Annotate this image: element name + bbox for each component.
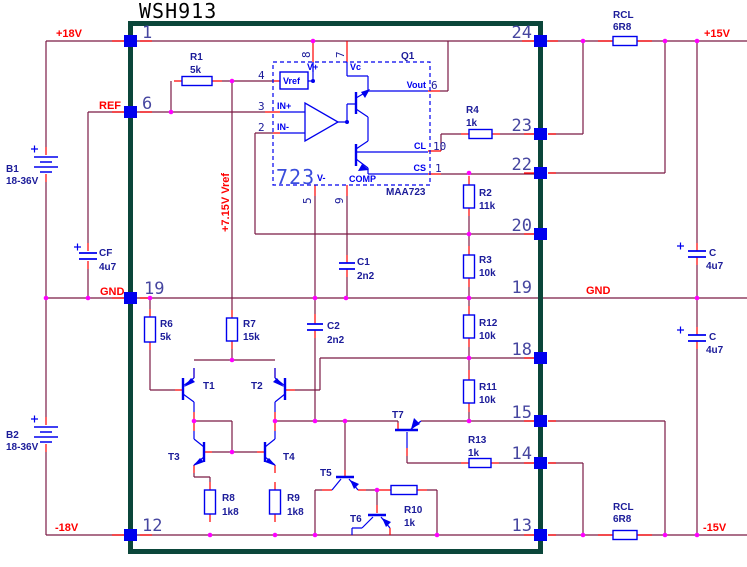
rcl-bottom-name: RCL <box>613 502 634 513</box>
r3-name: R3 <box>479 255 492 266</box>
ic-pin-3: 3 <box>258 100 265 113</box>
transistor-t1: T1 <box>183 368 215 412</box>
battery-b1: B1 18-36V <box>6 146 58 188</box>
c-bottom-value: 4u7 <box>706 345 724 356</box>
ic-pin-1: 1 <box>435 162 442 175</box>
resistor-rcl-bottom: RCL 6R8 <box>613 502 637 540</box>
t4-label: T4 <box>283 452 295 463</box>
t5-label: T5 <box>320 468 332 479</box>
ic-pin-10: 10 <box>433 140 446 153</box>
wire-minus15-links <box>548 421 747 535</box>
transistor-t7: T7 <box>392 410 421 448</box>
resistor-r3: R3 10k <box>464 255 497 279</box>
ic-vc: Vc <box>350 62 361 72</box>
pin-23: 23 <box>512 116 532 136</box>
ic-vminus: V- <box>317 173 326 183</box>
wire-cl-cs-sense-top <box>548 41 665 173</box>
transistor-t6: T6 <box>350 514 391 535</box>
module-title: WSH913 <box>139 0 217 23</box>
pin-19-left: 19 <box>144 279 164 299</box>
r6-value: 5k <box>160 332 172 343</box>
t1-label: T1 <box>203 381 215 392</box>
resistor-r2: R2 11k <box>464 185 496 212</box>
c1-value: 2n2 <box>357 271 375 282</box>
rcl-bottom-value: 6R8 <box>613 514 632 525</box>
b2-value: 18-36V <box>6 442 39 453</box>
r12-value: 10k <box>479 331 496 342</box>
label-plus18: +18V <box>56 28 83 40</box>
label-gnd-left: GND <box>100 286 125 298</box>
battery-b2: B2 18-36V <box>6 416 58 454</box>
capacitor-c1: C1 2n2 <box>339 257 375 282</box>
pin-18: 18 <box>512 340 532 360</box>
module-border <box>131 24 541 552</box>
rcl-top-name: RCL <box>613 10 634 21</box>
transistor-t5: T5 <box>320 468 359 490</box>
pin-22: 22 <box>512 155 532 175</box>
resistor-rcl-top: RCL 6R8 <box>613 10 637 46</box>
capacitor-c-top: C 4u7 <box>677 243 724 273</box>
label-plus15: +15V <box>704 28 731 40</box>
label-minus15: -15V <box>703 522 727 534</box>
pin-6: 6 <box>142 94 152 114</box>
r4-value: 1k <box>466 118 478 129</box>
r11-value: 10k <box>479 395 496 406</box>
b1-name: B1 <box>6 164 19 175</box>
t6-label: T6 <box>350 514 362 525</box>
resistor-r7: R7 15k <box>227 318 261 343</box>
c1-name: C1 <box>357 257 370 268</box>
r8-value: 1k8 <box>222 507 239 518</box>
ic-inminus: IN- <box>277 122 289 132</box>
c2-value: 2n2 <box>327 335 345 346</box>
t2-label: T2 <box>251 381 263 392</box>
capacitor-c-bottom: C 4u7 <box>677 327 724 357</box>
r11-name: R11 <box>479 382 497 393</box>
t3-label: T3 <box>168 452 180 463</box>
pin-19-right: 19 <box>512 278 532 298</box>
ic-pin-4: 4 <box>258 69 265 82</box>
ic-vref-text: Vref <box>283 76 301 86</box>
c2-name: C2 <box>327 321 340 332</box>
resistor-r11: R11 10k <box>464 380 498 406</box>
capacitor-cf: CF 4u7 <box>74 244 117 274</box>
r4-name: R4 <box>466 105 479 116</box>
r2-value: 11k <box>479 201 496 212</box>
ic-comp: COMP <box>349 174 376 184</box>
r13-name: R13 <box>468 435 487 446</box>
c-top-value: 4u7 <box>706 261 724 272</box>
wire-protection <box>315 421 437 535</box>
pin-1: 1 <box>142 23 152 43</box>
transistor-t3: T3 <box>168 431 210 482</box>
opamp-triangle <box>305 103 338 141</box>
ic-junction-ampout <box>345 120 349 124</box>
pin-20: 20 <box>512 216 532 236</box>
r9-name: R9 <box>287 493 300 504</box>
resistor-r4: R4 1k <box>466 105 492 139</box>
rcl-top-value: 6R8 <box>613 22 632 33</box>
c-bottom-name: C <box>709 332 716 343</box>
resistor-r13: R13 1k <box>468 435 491 468</box>
label-ref: REF <box>99 100 121 112</box>
cf-value: 4u7 <box>99 262 117 273</box>
r7-value: 15k <box>243 332 260 343</box>
label-gnd-right: GND <box>586 285 611 297</box>
transistor-t2: T2 <box>251 368 285 412</box>
r13-value: 1k <box>468 448 480 459</box>
cf-name: CF <box>99 248 112 259</box>
r1-value: 5k <box>190 65 202 76</box>
capacitor-c2: C2 2n2 <box>307 321 345 346</box>
resistor-r10: R10 1k <box>391 486 423 530</box>
wire-output-node <box>275 421 398 423</box>
ic-vout: Vout <box>407 80 426 90</box>
ic-cl: CL <box>414 141 426 151</box>
schematic-page: WSH913 1 6 19 12 24 23 22 20 19 18 <box>0 0 747 567</box>
ic-pin-8: 8 <box>300 51 313 58</box>
pin-24: 24 <box>512 23 532 43</box>
transistor-t4: T4 <box>265 431 295 466</box>
wire-vminus-comp <box>315 196 347 298</box>
q1-top-arrow <box>361 89 370 98</box>
ic-pin-9: 9 <box>333 197 346 204</box>
t7-label: T7 <box>392 410 404 421</box>
ic-cs: CS <box>413 163 426 173</box>
r6-name: R6 <box>160 319 173 330</box>
b2-name: B2 <box>6 430 19 441</box>
r12-name: R12 <box>479 318 498 329</box>
b1-value: 18-36V <box>6 176 39 187</box>
ic-pin-2: 2 <box>258 121 265 134</box>
pin-15: 15 <box>512 403 532 423</box>
r10-name: R10 <box>404 505 423 516</box>
r3-value: 10k <box>479 268 496 279</box>
resistor-r6: R6 5k <box>145 317 174 343</box>
ic-inplus: IN+ <box>277 101 291 111</box>
ic-pin-5: 5 <box>301 197 314 204</box>
resistor-r8: R8 1k8 <box>205 490 240 518</box>
wire-vout-link <box>440 41 448 91</box>
r9-value: 1k8 <box>287 507 304 518</box>
ic-pin-7: 7 <box>334 51 347 58</box>
label-minus18: -18V <box>55 522 79 534</box>
wire-r6-t1base <box>150 298 175 390</box>
ic-maa723: Q1 723 MAA723 Vref V+ Vc IN+ IN- V- COMP… <box>258 51 446 204</box>
circuit-schematic: WSH913 1 6 19 12 24 23 22 20 19 18 <box>0 0 747 567</box>
resistor-r9: R9 1k8 <box>270 490 305 518</box>
r7-name: R7 <box>243 319 256 330</box>
r10-value: 1k <box>404 518 416 529</box>
resistor-r1: R1 5k <box>182 52 212 86</box>
r1-name: R1 <box>190 52 203 63</box>
ic-pin-6: 6 <box>431 79 438 92</box>
r8-name: R8 <box>222 493 235 504</box>
ic-junction-vref <box>311 79 315 83</box>
pin-14: 14 <box>512 444 532 464</box>
resistor-r12: R12 10k <box>464 315 498 342</box>
wire-pin18-feedback <box>295 358 534 390</box>
ic-723-label: 723 <box>276 165 315 189</box>
c-top-name: C <box>709 248 716 259</box>
r2-name: R2 <box>479 188 492 199</box>
ic-q1-label: Q1 <box>401 51 415 62</box>
label-vref-rail: +7.15V Vref <box>220 173 232 232</box>
pin-13: 13 <box>512 516 532 536</box>
ic-part-label: MAA723 <box>386 187 426 198</box>
pin-12: 12 <box>142 516 162 536</box>
